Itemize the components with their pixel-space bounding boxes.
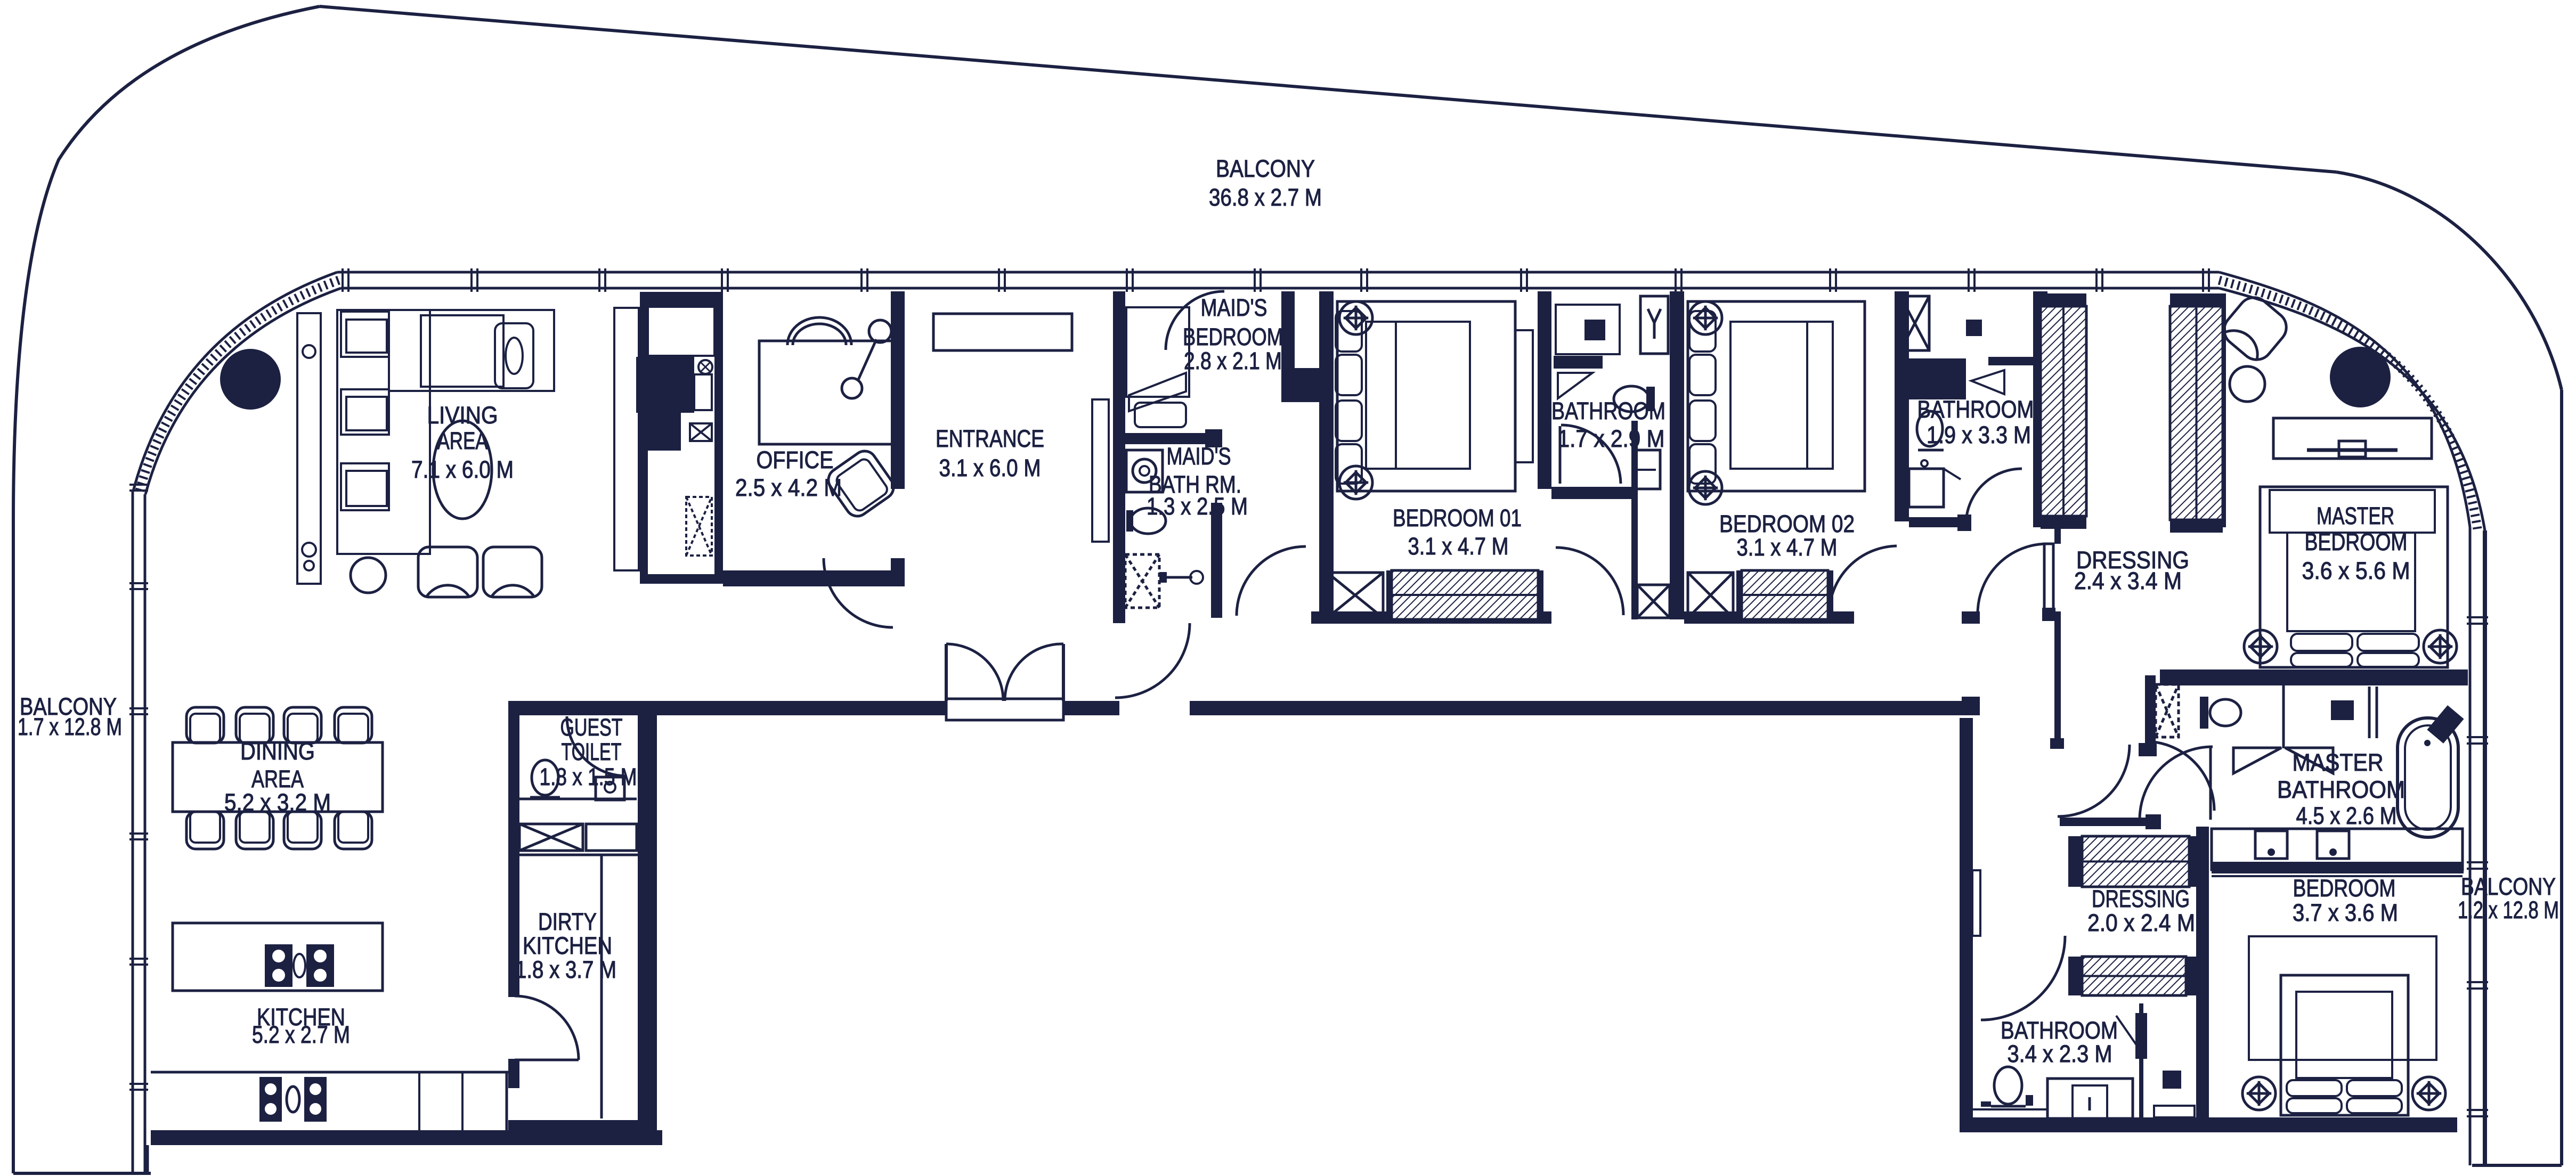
svg-text:BEDROOM: BEDROOM bbox=[2293, 875, 2396, 902]
svg-text:1.2 x 12.8 M: 1.2 x 12.8 M bbox=[2458, 896, 2559, 924]
svg-text:5.2 x 3.2 M: 5.2 x 3.2 M bbox=[224, 789, 331, 816]
svg-text:3.1 x 6.0 M: 3.1 x 6.0 M bbox=[939, 454, 1041, 481]
svg-text:MAID'S: MAID'S bbox=[1201, 294, 1267, 321]
svg-text:MAID'S: MAID'S bbox=[1167, 443, 1231, 470]
svg-text:BEDROOM: BEDROOM bbox=[2305, 528, 2408, 556]
svg-text:1.9 x 3.3 M: 1.9 x 3.3 M bbox=[1927, 421, 2031, 448]
svg-text:BEDROOM 01: BEDROOM 01 bbox=[1393, 504, 1522, 532]
svg-text:2.0 x 2.4 M: 2.0 x 2.4 M bbox=[2087, 909, 2195, 936]
svg-text:2.5 x 4.2 M: 2.5 x 4.2 M bbox=[735, 474, 842, 501]
svg-text:MASTER: MASTER bbox=[2317, 502, 2394, 529]
svg-text:1.7 x 2.9 M: 1.7 x 2.9 M bbox=[1558, 425, 1665, 452]
svg-text:7.1 x 6.0 M: 7.1 x 6.0 M bbox=[411, 456, 514, 483]
svg-text:DRESSING: DRESSING bbox=[2092, 885, 2190, 912]
svg-text:3.7 x 3.6 M: 3.7 x 3.6 M bbox=[2293, 899, 2398, 926]
svg-text:3.1 x 4.7 M: 3.1 x 4.7 M bbox=[1737, 534, 1838, 561]
svg-text:1.7 x 12.8 M: 1.7 x 12.8 M bbox=[18, 713, 122, 740]
svg-text:5.2 x 2.7 M: 5.2 x 2.7 M bbox=[252, 1021, 350, 1048]
svg-text:KITCHEN: KITCHEN bbox=[523, 932, 612, 959]
svg-text:BEDROOM: BEDROOM bbox=[1183, 323, 1283, 350]
svg-text:3.1 x 4.7 M: 3.1 x 4.7 M bbox=[1408, 533, 1509, 560]
svg-text:DIRTY: DIRTY bbox=[538, 908, 597, 935]
svg-text:1.8 x 1.5 M: 1.8 x 1.5 M bbox=[540, 763, 637, 790]
svg-text:MASTER: MASTER bbox=[2293, 749, 2384, 776]
svg-text:AREA: AREA bbox=[437, 427, 488, 454]
svg-text:BATHROOM: BATHROOM bbox=[2277, 776, 2405, 803]
svg-text:2.8 x 2.1 M: 2.8 x 2.1 M bbox=[1184, 347, 1282, 374]
svg-text:3.6 x 5.6 M: 3.6 x 5.6 M bbox=[2302, 557, 2410, 584]
svg-text:OFFICE: OFFICE bbox=[757, 446, 834, 473]
svg-text:TOILET: TOILET bbox=[562, 738, 622, 765]
svg-text:1.3 x 2.5 M: 1.3 x 2.5 M bbox=[1147, 493, 1248, 520]
svg-text:GUEST: GUEST bbox=[560, 714, 623, 741]
svg-text:1.8 x 3.7 M: 1.8 x 3.7 M bbox=[515, 956, 616, 983]
svg-text:ENTRANCE: ENTRANCE bbox=[936, 425, 1044, 452]
svg-text:2.4 x 3.4 M: 2.4 x 3.4 M bbox=[2074, 567, 2182, 594]
svg-text:4.5 x 2.6 M: 4.5 x 2.6 M bbox=[2296, 802, 2397, 829]
svg-text:BALCONY: BALCONY bbox=[1216, 155, 1315, 182]
svg-text:LIVING: LIVING bbox=[427, 402, 498, 429]
svg-text:3.4 x 2.3 M: 3.4 x 2.3 M bbox=[2008, 1040, 2112, 1067]
svg-text:BATHROOM: BATHROOM bbox=[1917, 396, 2034, 423]
svg-text:36.8 x 2.7 M: 36.8 x 2.7 M bbox=[1209, 184, 1322, 211]
svg-text:DINING: DINING bbox=[240, 738, 315, 765]
svg-text:BATHROOM: BATHROOM bbox=[1551, 397, 1665, 424]
